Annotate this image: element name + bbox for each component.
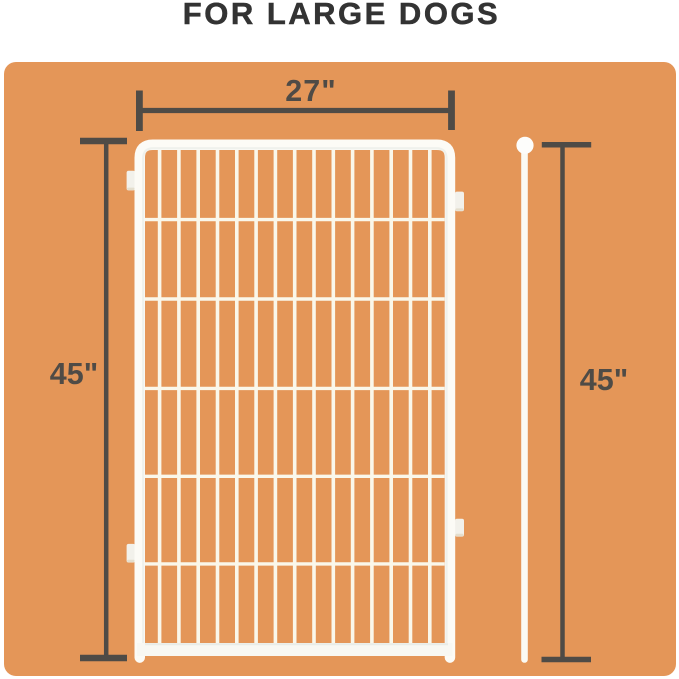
svg-text:45": 45" [580,363,628,397]
svg-text:45": 45" [50,357,98,391]
svg-text:27": 27" [285,74,336,108]
